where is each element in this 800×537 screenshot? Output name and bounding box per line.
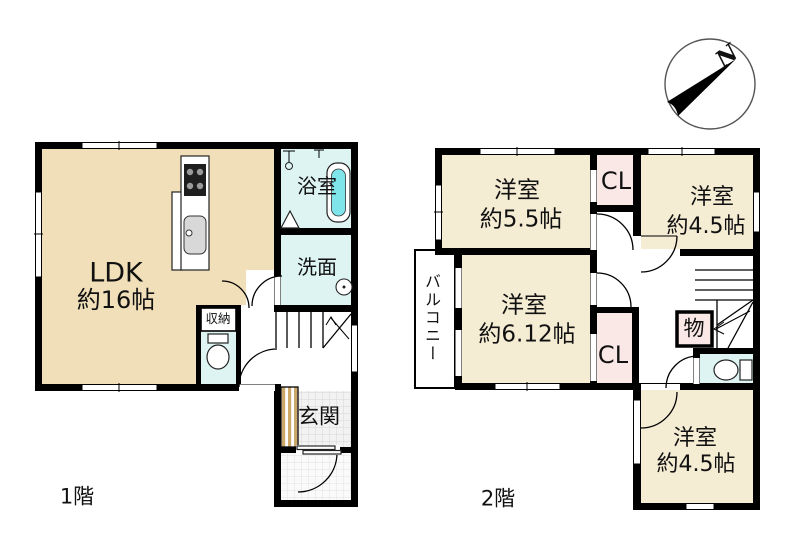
room45-bottom-label: 洋室 <box>673 428 717 450</box>
room55-size-label: 約5.5帖 <box>480 209 563 232</box>
floor2-toilet <box>714 360 752 380</box>
room612-size-label: 約6.12帖 <box>478 324 575 347</box>
bathroom-label: 浴室 <box>297 176 337 196</box>
room45-bottom-size-label: 約4.5帖 <box>657 454 736 476</box>
room55-label: 洋室 <box>494 180 540 203</box>
washroom-label: 洗面 <box>297 257 337 277</box>
floor1-toilet <box>207 334 229 369</box>
storage-label: 収納 <box>205 313 230 326</box>
floorplan-canvas: LDK 約16帖 浴室 洗面 収納 玄関 1階 洋室 約5.5帖 CL 洋室 約… <box>0 0 800 537</box>
ldk-size-label: 約16帖 <box>77 288 156 312</box>
floor1-stairs <box>276 312 351 348</box>
balcony-label: バルコニー <box>423 273 439 363</box>
closet-bottom-label: CL <box>598 343 628 367</box>
entrance-label: 玄関 <box>298 407 340 428</box>
ldk-label: LDK <box>89 260 143 287</box>
closet-top-label: CL <box>601 169 631 193</box>
storage2f-label: 物 <box>684 319 705 340</box>
room45-top-label: 洋室 <box>690 187 734 209</box>
room612-label: 洋室 <box>501 295 547 318</box>
floor1-label: 1階 <box>60 487 94 508</box>
floor2-label: 2階 <box>481 489 515 510</box>
room45-top-size-label: 約4.5帖 <box>667 216 746 238</box>
